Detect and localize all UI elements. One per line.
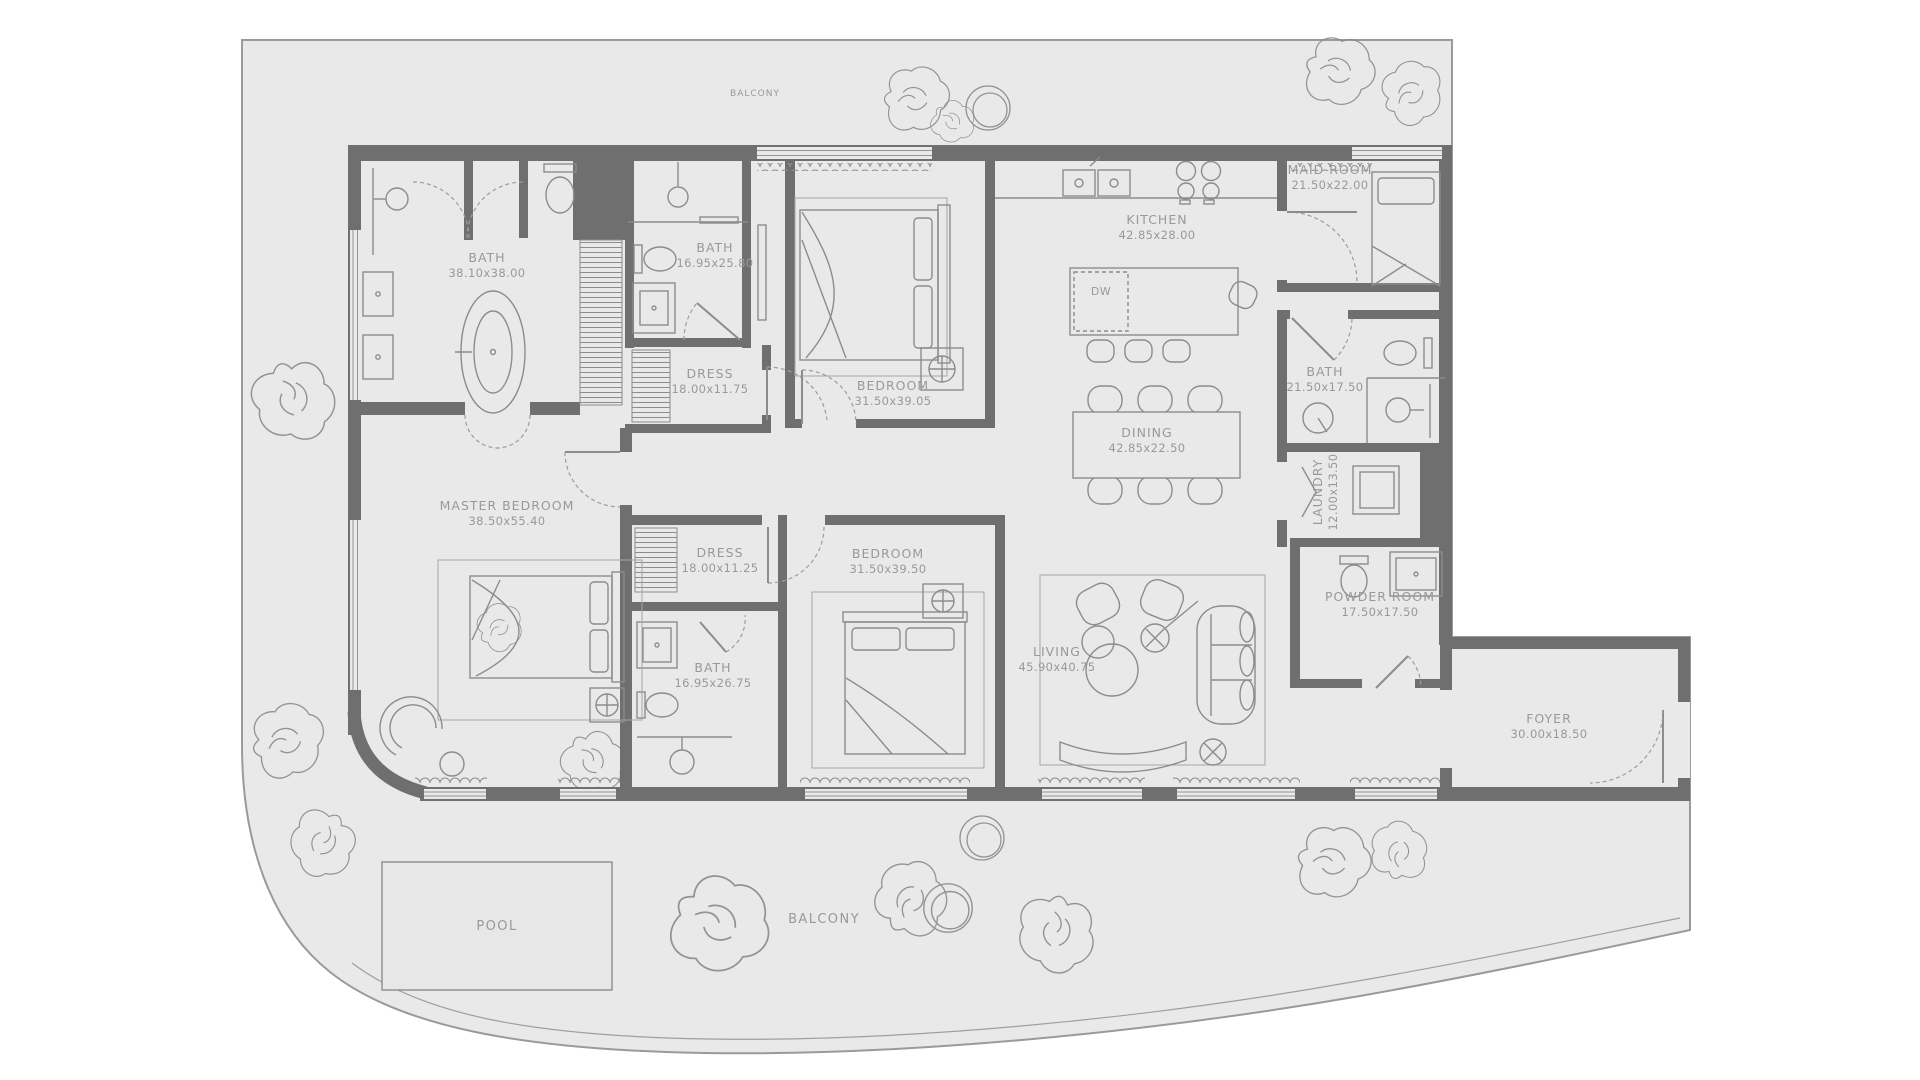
svg-text:18.00x11.25: 18.00x11.25 xyxy=(681,561,758,575)
svg-text:17.50x17.50: 17.50x17.50 xyxy=(1341,605,1418,619)
svg-text:45.90x40.75: 45.90x40.75 xyxy=(1018,660,1095,674)
window-top-bedroom1 xyxy=(757,147,932,159)
svg-text:30.00x18.50: 30.00x18.50 xyxy=(1510,727,1587,741)
svg-text:BATH: BATH xyxy=(696,240,733,255)
svg-text:BATH: BATH xyxy=(694,660,731,675)
label-dw: DW xyxy=(1091,285,1111,298)
svg-text:DRESS: DRESS xyxy=(686,366,733,381)
svg-text:BEDROOM: BEDROOM xyxy=(852,546,924,561)
svg-text:42.85x22.50: 42.85x22.50 xyxy=(1108,441,1185,455)
svg-text:16.95x26.75: 16.95x26.75 xyxy=(674,676,751,690)
svg-text:38.10x38.00: 38.10x38.00 xyxy=(448,266,525,280)
svg-text:16.95x25.80: 16.95x25.80 xyxy=(676,256,753,270)
svg-text:21.50x22.00: 21.50x22.00 xyxy=(1291,178,1368,192)
svg-text:LIVING: LIVING xyxy=(1033,644,1081,659)
label-pool: POOL xyxy=(476,919,517,934)
svg-text:21.50x17.50: 21.50x17.50 xyxy=(1286,380,1363,394)
svg-text:12.00x13.50: 12.00x13.50 xyxy=(1326,453,1340,530)
svg-text:DINING: DINING xyxy=(1121,425,1172,440)
svg-text:KITCHEN: KITCHEN xyxy=(1126,212,1187,227)
svg-text:38.50x55.40: 38.50x55.40 xyxy=(468,514,545,528)
floorplan-page: BATH 38.10x38.00 BATH 16.95x25.80 DRESS … xyxy=(0,0,1920,1080)
svg-text:BEDROOM: BEDROOM xyxy=(857,378,929,393)
svg-text:BATH: BATH xyxy=(1306,364,1343,379)
window-left-masterbedroom xyxy=(350,520,361,690)
label-balcony-lower: BALCONY xyxy=(788,912,860,927)
svg-text:POWDER ROOM: POWDER ROOM xyxy=(1325,589,1435,604)
svg-text:18.00x11.75: 18.00x11.75 xyxy=(671,382,748,396)
svg-text:BATH: BATH xyxy=(468,250,505,265)
svg-text:42.85x28.00: 42.85x28.00 xyxy=(1118,228,1195,242)
window-top-maid xyxy=(1352,147,1442,159)
svg-text:31.50x39.50: 31.50x39.50 xyxy=(849,562,926,576)
floorplan-drawing: BATH 38.10x38.00 BATH 16.95x25.80 DRESS … xyxy=(0,0,1920,1080)
svg-text:MAID ROOM: MAID ROOM xyxy=(1288,162,1373,177)
svg-text:DRESS: DRESS xyxy=(696,545,743,560)
windows-bottom xyxy=(424,789,1437,799)
svg-text:FOYER: FOYER xyxy=(1526,711,1572,726)
svg-text:MASTER BEDROOM: MASTER BEDROOM xyxy=(440,498,575,513)
window-left-masterbath xyxy=(350,230,361,400)
entry-door-opening xyxy=(1678,702,1690,778)
svg-text:31.50x39.05: 31.50x39.05 xyxy=(854,394,931,408)
svg-text:LAUNDRY: LAUNDRY xyxy=(1310,459,1325,525)
label-balcony-upper: BALCONY xyxy=(730,89,780,99)
